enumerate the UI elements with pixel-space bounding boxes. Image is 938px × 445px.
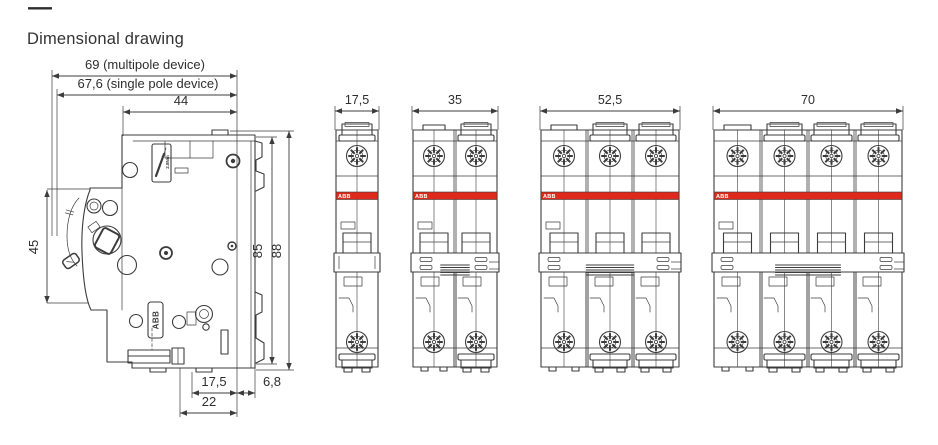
front-dim-3-pole: 52,5 (540, 93, 680, 114)
front-view-1-pole: 17,5ABB (334, 93, 380, 372)
terminal-screw-icon (600, 146, 621, 167)
dim-depth-44: 44 (123, 93, 237, 115)
dim-width-multipole-label: 69 (multipole device) (85, 57, 205, 72)
brand-stripe-label: ABB (716, 194, 729, 200)
front-view-3-pole: 52,5ABB (539, 93, 681, 372)
brand-stripe (541, 192, 679, 200)
terminal-screw-icon (821, 332, 842, 353)
dim-width-single-pole-label: 67,6 (single pole device) (78, 76, 219, 91)
terminal-screw-icon (554, 332, 575, 353)
dim-height-45-label: 45 (26, 240, 41, 254)
terminal-screw-icon (646, 146, 667, 167)
terminal-screw-icon (727, 146, 748, 167)
dim-height-45: 45 (26, 190, 50, 303)
brand-plate-label: ABB (152, 311, 161, 330)
side-view-drawing: 2.8Nm (62, 130, 264, 372)
dim-offset-17-5-label: 17,5 (201, 374, 226, 389)
top-tab (212, 130, 228, 135)
side-body-outline (82, 135, 255, 368)
dim-height-85-label: 85 (250, 244, 265, 258)
front-dim-2-pole: 35 (412, 93, 498, 114)
dim-offset-17-5: 17,5 (192, 374, 237, 396)
front-dim-1-pole: 17,5 (335, 93, 379, 114)
front-view-4-pole: 70ABB (712, 93, 904, 372)
brand-stripe-label: ABB (543, 194, 556, 200)
front-dim-1-pole-label: 17,5 (345, 93, 369, 107)
terminal-screw-icon (347, 332, 368, 353)
dim-width-single-pole: 67,6 (single pole device) (57, 76, 237, 98)
brand-stripe-label: ABB (415, 194, 428, 200)
dim-clip-6-8-label: 6,8 (263, 374, 281, 389)
front-dim-4-pole-label: 70 (801, 93, 815, 107)
front-views: 17,5ABB35ABB52,5ABB70ABB (334, 93, 904, 372)
dim-seat-22: 22 (180, 394, 237, 416)
dimensional-drawing-page: — Dimensional drawing 2.8Nm (0, 0, 938, 445)
dim-depth-44-label: 44 (174, 93, 188, 108)
terminal-screw-icon (424, 146, 445, 167)
terminal-screw-icon (868, 146, 889, 167)
terminal-screw-icon (868, 332, 889, 353)
front-dim-2-pole-label: 35 (448, 93, 462, 107)
terminal-screw-icon (774, 332, 795, 353)
front-view-2-pole: 35ABB (411, 93, 499, 372)
terminal-screw-icon (466, 332, 487, 353)
terminal-screw-icon (821, 146, 842, 167)
front-dim-4-pole: 70 (713, 93, 903, 114)
torque-label: 2.8Nm (165, 155, 170, 169)
terminal-screw-icon (424, 332, 445, 353)
terminal-screw-icon (347, 146, 368, 167)
dim-clip-6-8: 6,8 (237, 374, 281, 396)
brand-stripe (714, 192, 902, 200)
brand-stripe-label: ABB (338, 194, 351, 200)
front-dim-3-pole-label: 52,5 (598, 93, 622, 107)
dim-seat-22-label: 22 (202, 394, 216, 409)
terminal-screw-icon (646, 332, 667, 353)
dimensional-drawing-canvas: 2.8Nm (0, 0, 938, 445)
terminal-screw-icon (600, 332, 621, 353)
terminal-screw-icon (466, 146, 487, 167)
dim-height-88-label: 88 (269, 244, 284, 258)
terminal-screw-icon (774, 146, 795, 167)
terminal-screw-icon (554, 146, 575, 167)
terminal-screw-icon (727, 332, 748, 353)
